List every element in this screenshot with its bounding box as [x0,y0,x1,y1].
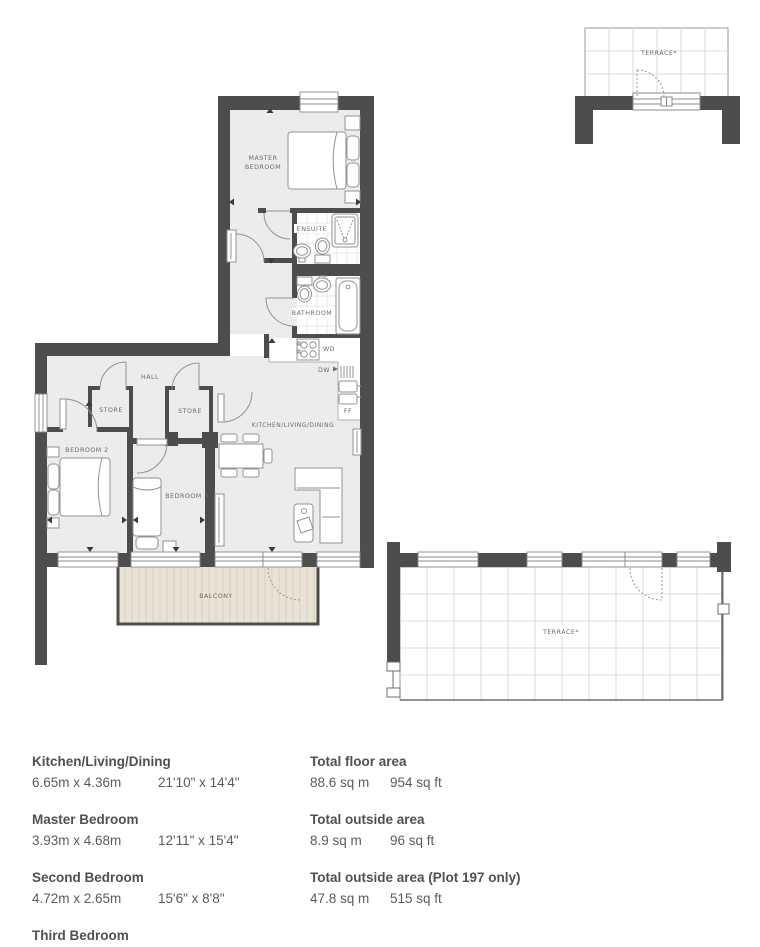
label-store-2: STORE [178,408,202,415]
total-values: 88.6 sq m 954 sq ft [310,775,610,791]
label-dw: DW [318,367,330,374]
metric-dims: 3.93m x 4.68m [32,833,158,849]
room-dimensions: 4.72m x 2.65m 15'6" x 8'8" [32,891,302,907]
label-bathroom: BATHROOM [292,310,332,317]
legend-totals: Total floor area 88.6 sq m 954 sq ft Tot… [310,754,610,928]
room-name: Third Bedroom [32,928,302,944]
ensuite-toilet [315,238,330,263]
label-ff: FF [344,408,352,415]
room-name: Master Bedroom [32,812,302,828]
label-wd: WD [323,346,335,353]
label-master-bedroom-2: BEDROOM [245,164,281,171]
terrace-upper-door [633,93,700,110]
metric-area: 47.8 sq m [310,891,390,907]
metric-dims: 6.65m x 4.36m [32,775,158,791]
room-name: Second Bedroom [32,870,302,886]
label-terrace-upper: TERRACE* [640,50,677,57]
imperial-area: 96 sq ft [390,833,434,849]
total-name: Total outside area [310,812,610,828]
imperial-dims: 21'10" x 14'4" [158,775,240,791]
floorplan-page: MASTER BEDROOM ENSUITE BATHROOM HALL STO… [0,0,760,947]
imperial-area: 954 sq ft [390,775,442,791]
window-master [300,92,338,112]
bedroom3-door-leaf [137,439,167,445]
total-name: Total floor area [310,754,610,770]
shower [332,214,358,247]
hob [297,339,319,360]
total-values: 47.8 sq m 515 sq ft [310,891,610,907]
room-dimensions: 3.93m x 4.68m 12'11" x 15'4" [32,833,302,849]
floor-plan: MASTER BEDROOM ENSUITE BATHROOM HALL STO… [0,0,760,730]
bathroom-toilet [297,277,312,302]
terrace-upper-area [575,28,740,144]
coffee-table [294,504,313,542]
room-name: Kitchen/Living/Dining [32,754,302,770]
label-kitchen-living-dining: KITCHEN/LIVING/DINING [252,422,334,429]
label-store-1: STORE [99,407,123,414]
bathtub [336,278,360,334]
label-ensuite: ENSUITE [297,226,327,233]
bedroom2-door-leaf [60,399,66,429]
label-bedroom-3: BEDROOM 3 [165,493,208,500]
label-bedroom-2: BEDROOM 2 [65,447,108,454]
total-values: 8.9 sq m 96 sq ft [310,833,610,849]
legend-rooms: Kitchen/Living/Dining 6.65m x 4.36m 21'1… [32,754,302,947]
imperial-area: 515 sq ft [390,891,442,907]
terrace-lower-door [625,552,662,567]
label-master-bedroom-1: MASTER [249,155,278,162]
metric-area: 8.9 sq m [310,833,390,849]
label-terrace-lower: TERRACE* [542,629,579,636]
hall-door-leaf [218,394,224,422]
imperial-dims: 15'6" x 8'8" [158,891,225,907]
metric-area: 88.6 sq m [310,775,390,791]
label-hall: HALL [141,374,159,381]
label-balcony: BALCONY [199,593,233,600]
imperial-dims: 12'11" x 15'4" [158,833,239,849]
total-name: Total outside area (Plot 197 only) [310,870,610,886]
room-dimensions: 6.65m x 4.36m 21'10" x 14'4" [32,775,302,791]
window-hall [35,394,47,432]
metric-dims: 4.72m x 2.65m [32,891,158,907]
balcony-door [263,552,302,567]
